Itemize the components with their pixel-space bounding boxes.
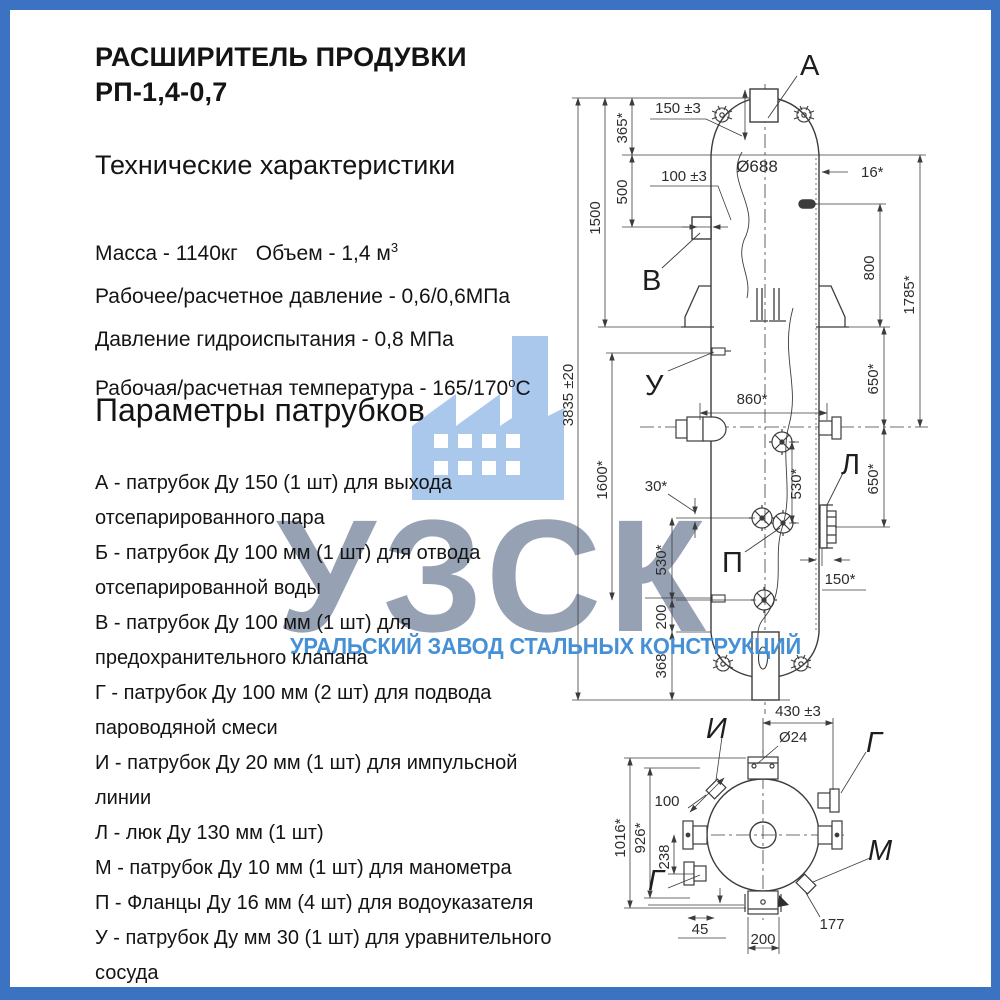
- lower-pin: [712, 595, 725, 602]
- nozzle-item-a: А - патрубок Ду 150 (1 шт) для выхода от…: [95, 466, 577, 536]
- section-mark: [778, 895, 789, 907]
- nozzles-heading: Параметры патрубков: [95, 392, 425, 429]
- nozzle-a: [750, 89, 778, 122]
- dim-500: 500: [614, 179, 631, 204]
- right-nozzle: [818, 821, 842, 849]
- top-nozzle: [748, 757, 778, 779]
- label-m: М: [868, 835, 893, 867]
- spec-pressure: Рабочее/расчетное давление - 0,6/0,6МПа: [95, 275, 531, 318]
- dim-dia688: Ø688: [736, 157, 778, 176]
- dim-365: 365*: [614, 112, 631, 143]
- title-line-2: РП-1,4-0,7: [95, 75, 467, 110]
- dim-800: 800: [861, 255, 878, 280]
- specs-list: Масса - 1140кгОбъем - 1,4 м3 Рабочее/рас…: [95, 226, 531, 410]
- dim-3835: 3835 ±20: [560, 364, 577, 426]
- dim-238: 238: [656, 844, 673, 869]
- nozzle-g-left: [676, 417, 726, 441]
- label-u: У: [645, 370, 664, 402]
- spec-volume: Объем - 1,4 м: [256, 242, 391, 265]
- dim-1600: 1600*: [594, 460, 611, 499]
- left-nozzle: [683, 821, 707, 849]
- dim-dia24: Ø24: [779, 729, 807, 746]
- dim-100: 100 ±3: [661, 168, 707, 185]
- nozzle-v: [692, 217, 711, 239]
- nozzle-g-bottomleft: [684, 862, 706, 885]
- dim-200: 200: [653, 604, 670, 629]
- spec-mass: Масса - 1140кг: [95, 242, 238, 265]
- spec-volume-sup: 3: [391, 240, 398, 255]
- dim-860: 860*: [737, 391, 768, 408]
- specs-heading: Технические характеристики: [95, 150, 455, 181]
- dim-650b: 650*: [865, 463, 882, 494]
- label-l: Л: [841, 449, 860, 481]
- bottom-nozzle: [745, 891, 781, 914]
- dim-1500: 1500: [587, 201, 604, 234]
- label-v: В: [642, 265, 661, 297]
- spec-mass-volume: Масса - 1140кгОбъем - 1,4 м3: [95, 226, 531, 275]
- title-line-1: РАСШИРИТЕЛЬ ПРОДУВКИ: [95, 40, 467, 75]
- nozzle-item-i: И - патрубок Ду 20 мм (1 шт) для импульс…: [95, 746, 577, 816]
- nozzle-g-right: [819, 417, 841, 439]
- nozzle-item-m: М - патрубок Ду 10 мм (1 шт) для маномет…: [95, 851, 577, 886]
- dimension-lines: [630, 723, 833, 948]
- spec-temp-unit: С: [515, 377, 530, 400]
- nozzles-list: А - патрубок Ду 150 (1 шт) для выхода от…: [95, 466, 577, 991]
- dim-177: 177: [819, 916, 844, 933]
- nozzle-u: [712, 348, 731, 355]
- manhole-l: [820, 505, 836, 548]
- front-view-texts: А В У Л П 3835 ±20 1500 1600* 365* 500 1…: [560, 50, 918, 679]
- dim-650a: 650*: [865, 363, 882, 394]
- dim-200t: 200: [750, 931, 775, 948]
- nozzle-item-p: П - Фланцы Ду 16 мм (4 шт) для водоуказа…: [95, 886, 577, 921]
- dim-530r: 530*: [788, 468, 805, 499]
- label-a: А: [800, 50, 820, 82]
- dim-1785: 1785*: [901, 275, 918, 314]
- label-g1: Г: [866, 727, 884, 759]
- page-title: РАСШИРИТЕЛЬ ПРОДУВКИ РП-1,4-0,7: [95, 40, 467, 110]
- dim-530l: 530*: [653, 544, 670, 575]
- nozzle-item-l: Л - люк Ду 130 мм (1 шт): [95, 816, 577, 851]
- dim-926: 926*: [632, 822, 649, 853]
- nozzle-item-g: Г - патрубок Ду 100 мм (2 шт) для подвод…: [95, 676, 577, 746]
- nozzle-g-topright: [818, 789, 839, 812]
- nozzle-m-front: [799, 200, 815, 208]
- dim-30: 30*: [645, 478, 668, 495]
- nozzle-item-u: У - патрубок Ду мм 30 (1 шт) для уравнит…: [95, 921, 577, 991]
- dim-150: 150 ±3: [655, 100, 701, 117]
- dim-45: 45: [692, 921, 709, 938]
- spec-hydro-test: Давление гидроиспытания - 0,8 МПа: [95, 318, 531, 361]
- dim-1016: 1016*: [612, 818, 629, 857]
- nozzle-item-v: В - патрубок Ду 100 мм (1 шт) для предох…: [95, 606, 577, 676]
- label-p: П: [722, 547, 743, 579]
- nozzle-item-b: Б - патрубок Ду 100 мм (1 шт) для отвода…: [95, 536, 577, 606]
- dim-100t: 100: [654, 793, 679, 810]
- label-i: И: [706, 713, 727, 745]
- dim-430: 430 ±3: [775, 703, 821, 720]
- dim-wall16: 16*: [861, 164, 884, 181]
- dim-150r: 150*: [825, 571, 856, 588]
